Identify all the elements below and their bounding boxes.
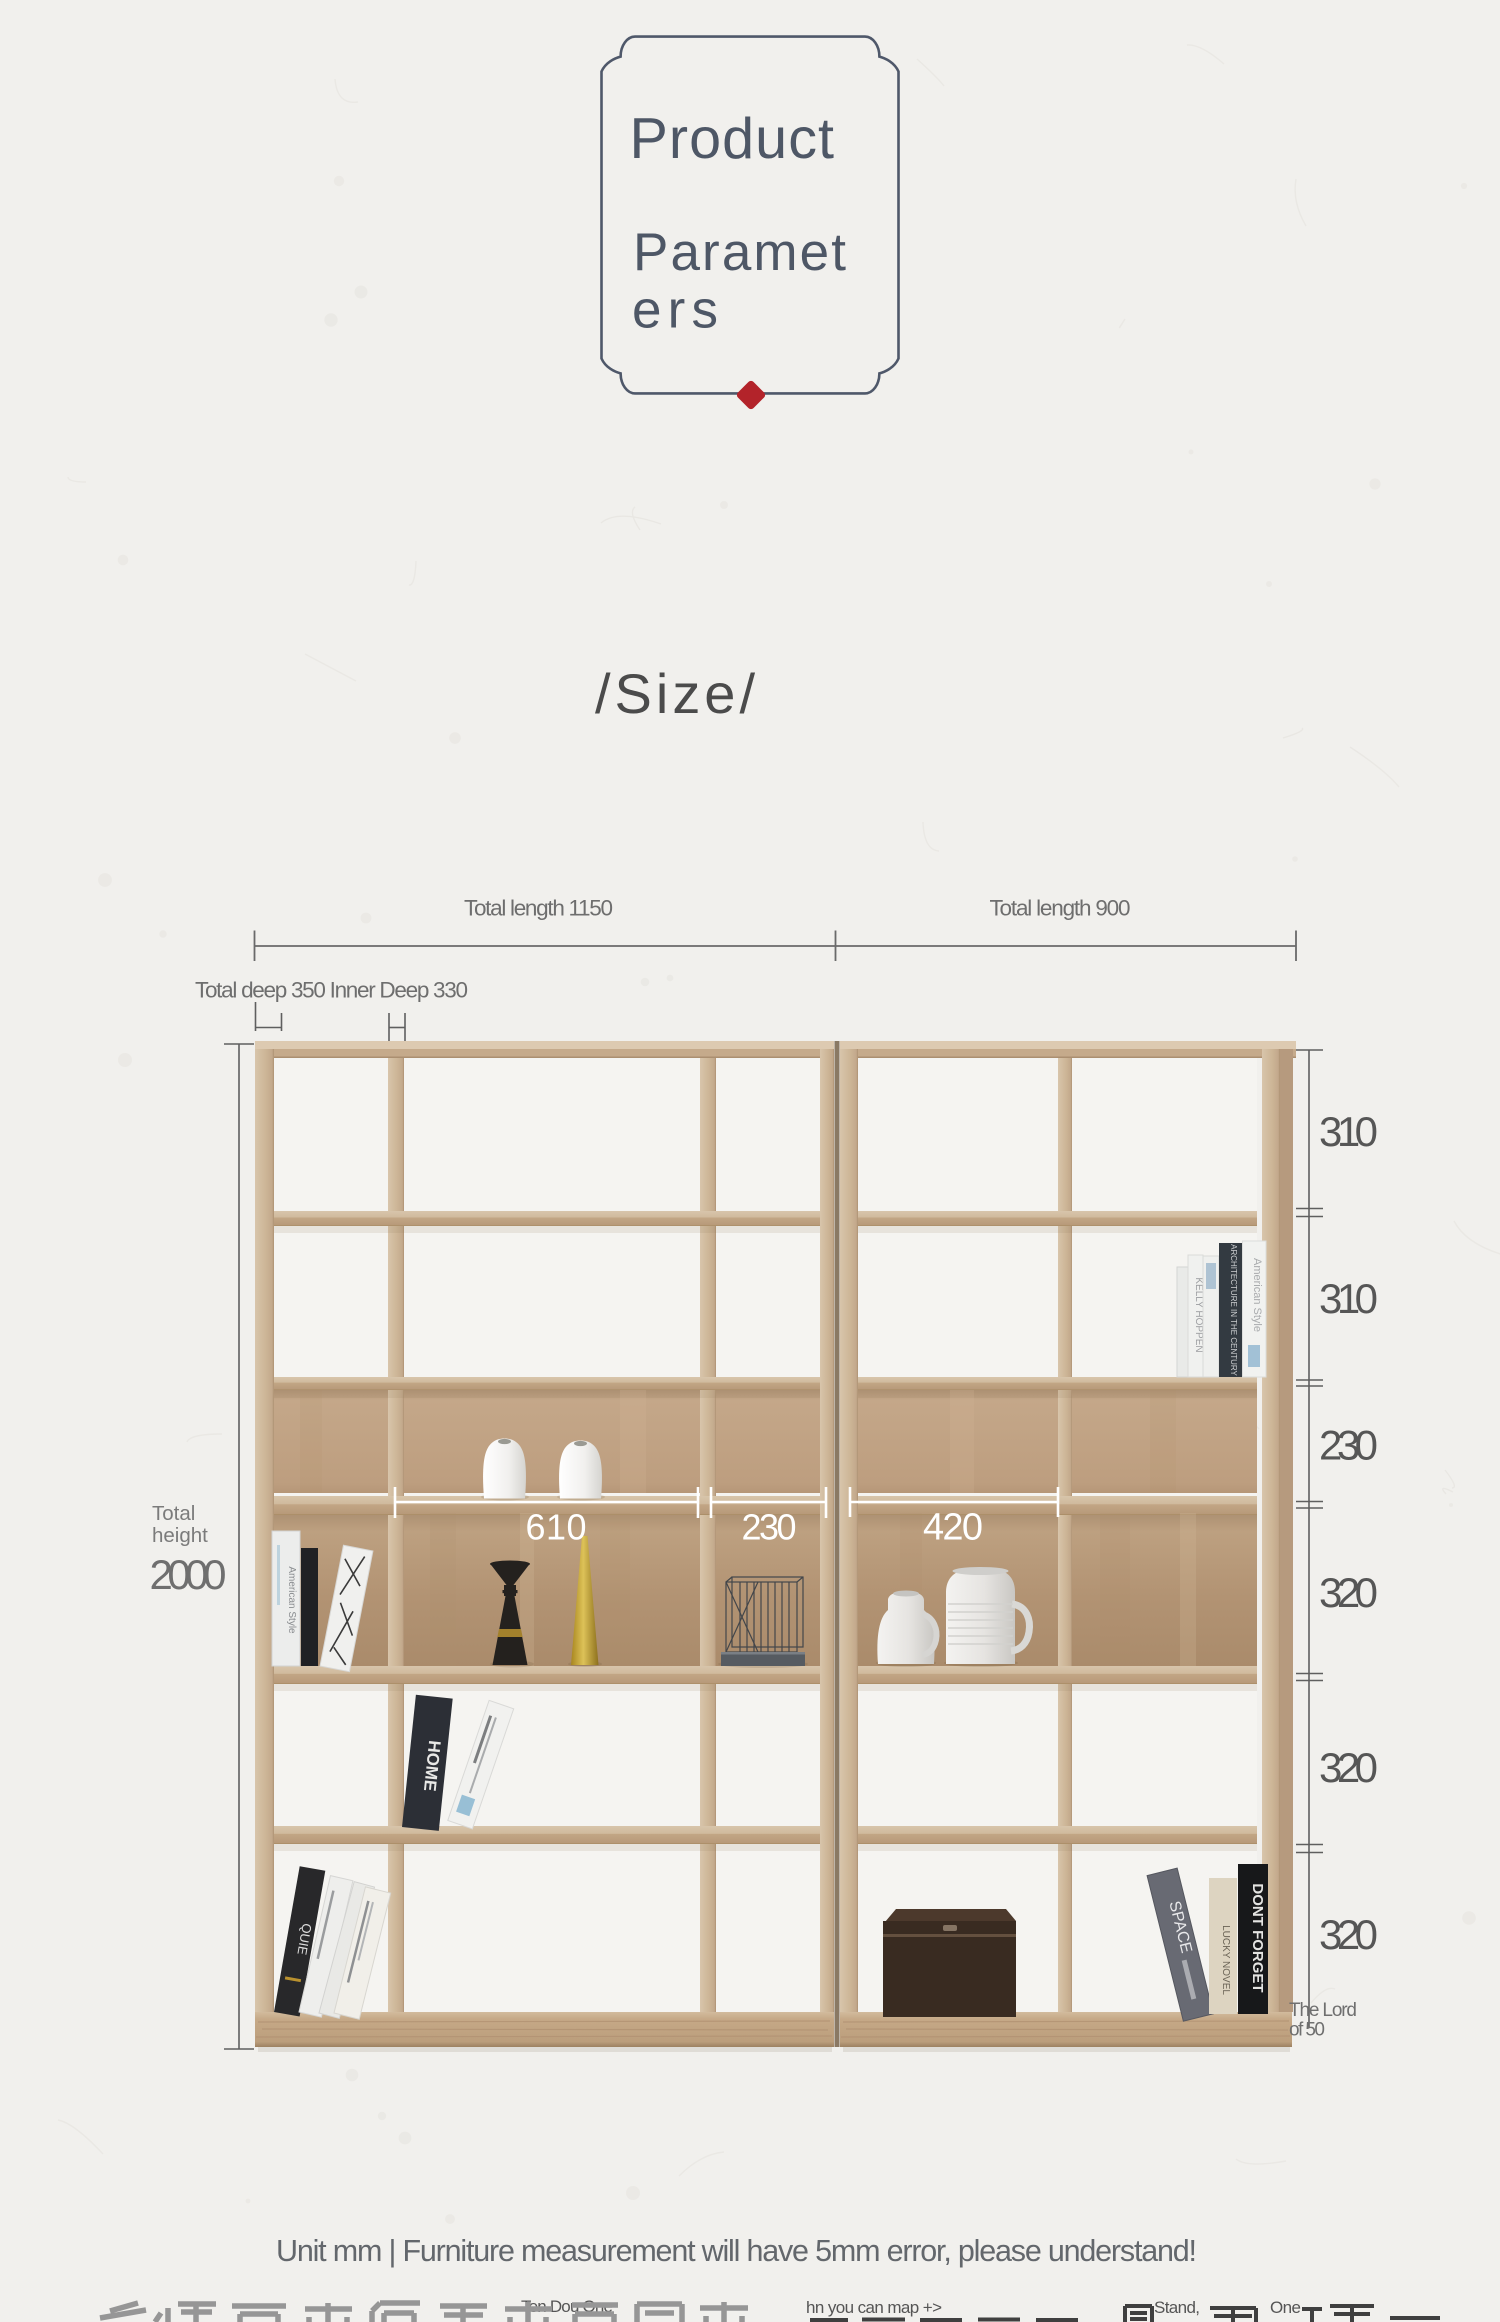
svg-text:Total length 1150: Total length 1150	[464, 896, 613, 921]
svg-text:610: 610	[526, 1507, 587, 1548]
svg-text:320: 320	[1319, 1911, 1378, 1958]
svg-text:Product: Product	[630, 107, 835, 171]
svg-text:LUCKY NOVEL: LUCKY NOVEL	[1220, 1925, 1231, 1995]
svg-text:hn you can map +>: hn you can map +>	[806, 2298, 942, 2317]
svg-text:American Style: American Style	[286, 1566, 297, 1634]
svg-text:One: One	[1270, 2298, 1301, 2317]
svg-text:/Size/: /Size/	[595, 662, 755, 725]
svg-text:420: 420	[923, 1507, 983, 1549]
svg-text:320: 320	[1319, 1744, 1378, 1791]
svg-text:2000: 2000	[150, 1551, 227, 1598]
svg-text:KELLY HOPPEN: KELLY HOPPEN	[1193, 1277, 1204, 1352]
svg-text:ers: ers	[632, 281, 718, 340]
svg-text:DONT FORGET: DONT FORGET	[1249, 1883, 1266, 1992]
svg-text:The Lord: The Lord	[1289, 2000, 1357, 2021]
svg-text:ARCHITECTURE IN THE CENTURY: ARCHITECTURE IN THE CENTURY	[1229, 1244, 1238, 1376]
svg-text:Total: Total	[152, 1502, 195, 1525]
svg-text:310: 310	[1319, 1275, 1378, 1322]
svg-text:320: 320	[1319, 1569, 1378, 1616]
svg-text:of 50: of 50	[1289, 2020, 1325, 2041]
svg-text:American Style: American Style	[1251, 1258, 1263, 1332]
svg-text:230: 230	[1319, 1422, 1378, 1469]
svg-text:Stand,: Stand,	[1154, 2298, 1200, 2317]
svg-text:230: 230	[742, 1507, 797, 1548]
svg-text:Unit mm | Furniture measuremen: Unit mm | Furniture measurement will hav…	[276, 2234, 1197, 2268]
svg-text:Total length 900: Total length 900	[990, 896, 1131, 921]
svg-text:Total deep 350 Inner Deep 330: Total deep 350 Inner Deep 330	[195, 978, 468, 1003]
svg-text:height: height	[152, 1524, 208, 1547]
svg-text:310: 310	[1319, 1108, 1378, 1155]
svg-text:Paramet: Paramet	[633, 223, 846, 282]
